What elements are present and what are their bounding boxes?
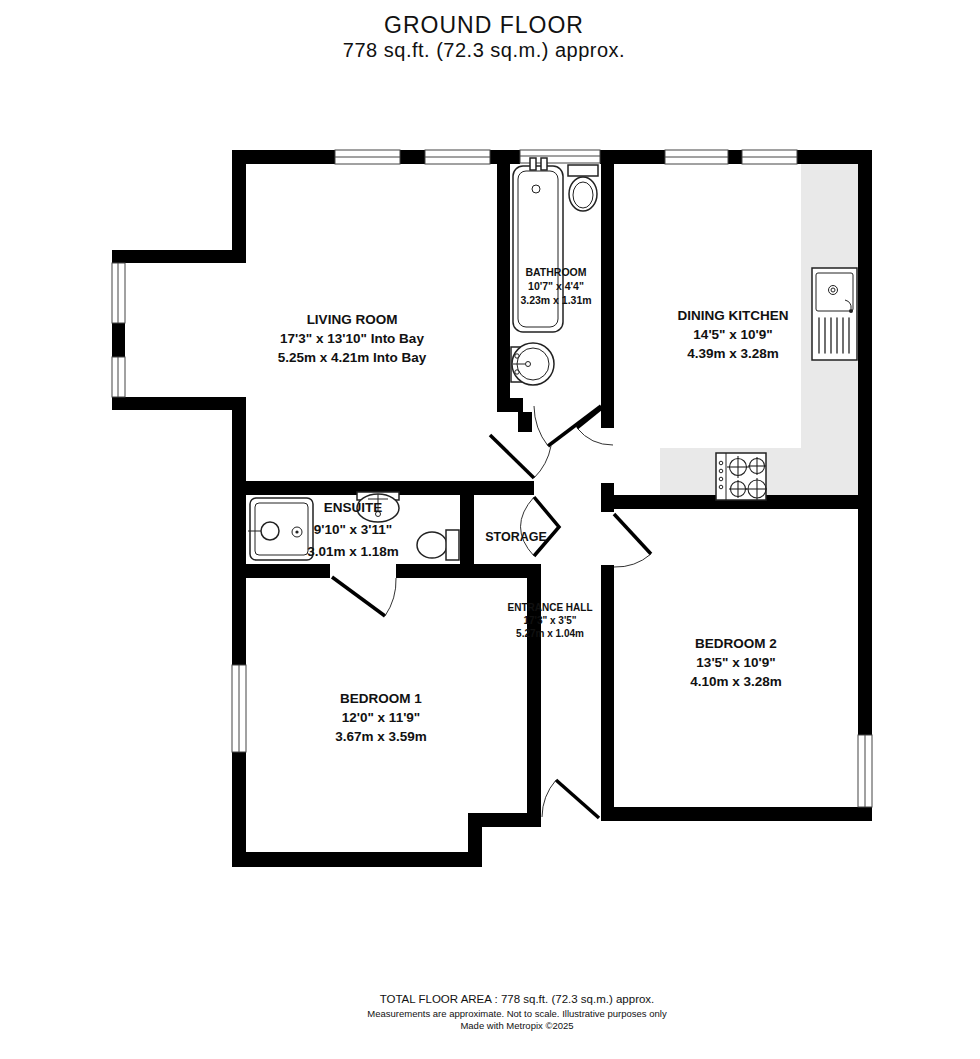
wall-segment: [601, 150, 614, 428]
room-name: BEDROOM 2: [695, 636, 777, 651]
wall-segment: [396, 564, 541, 578]
door-arc-bathroom: [534, 406, 548, 446]
wall-segment: [232, 150, 335, 164]
room-name: ENTRANCE HALL: [508, 602, 593, 613]
door-arc-entrance: [542, 780, 556, 817]
label-living-room: LIVING ROOM 17'3" x 13'10" Into Bay 5.25…: [278, 312, 427, 365]
wall-segment: [232, 150, 246, 263]
label-entrance-hall: ENTRANCE HALL 17'3" x 3'5" 5.27m x 1.04m: [508, 602, 593, 639]
room-dims-metric: 5.25m x 4.21m Into Bay: [278, 350, 427, 365]
bath-icon: [513, 166, 563, 332]
walls: [112, 150, 872, 867]
wall-segment: [460, 495, 474, 564]
bay-wall-left: [112, 323, 125, 357]
wall-segment: [497, 398, 523, 412]
credit: Made with Metropix ©2025: [460, 1020, 573, 1031]
bath-tap-icon: [541, 158, 547, 170]
bay-wall-left: [112, 250, 125, 263]
label-dining-kitchen: DINING KITCHEN 14'5" x 10'9" 4.39m x 3.2…: [678, 308, 789, 361]
sink-tap-base: [849, 309, 853, 313]
wall-segment: [232, 752, 246, 867]
room-name: ENSUITE: [324, 500, 383, 515]
wall-segment: [232, 397, 246, 665]
wall-segment: [728, 150, 742, 164]
wall-segment: [601, 565, 614, 821]
room-name: BEDROOM 1: [340, 691, 422, 706]
shower-head-icon: [261, 522, 279, 540]
shower-icon: [250, 498, 313, 560]
room-dims-imperial: 13'5" x 10'9": [696, 655, 775, 670]
room-dims-imperial: 12'0" x 11'9": [342, 710, 421, 725]
hob-icon: [716, 453, 766, 500]
ensuite-toilet-icon: [417, 532, 447, 558]
wall-segment: [400, 150, 425, 164]
room-name: LIVING ROOM: [307, 312, 398, 327]
title: GROUND FLOOR 778 sq.ft. (72.3 sq.m.) app…: [343, 12, 625, 61]
door-leaf-entrance: [556, 780, 599, 818]
door-arc-kitchen: [577, 428, 613, 445]
door-leaf-bathroom: [548, 406, 601, 446]
room-name: BATHROOM: [525, 266, 586, 278]
room-name: DINING KITCHEN: [678, 308, 789, 323]
toilet-cistern-icon: [568, 165, 598, 176]
label-bedroom-1: BEDROOM 1 12'0" x 11'9" 3.67m x 3.59m: [335, 691, 427, 744]
ensuite-toilet-cistern: [446, 530, 459, 560]
room-dims-imperial: 10'7" x 4'4": [528, 280, 584, 292]
label-bathroom: BATHROOM 10'7" x 4'4" 3.23m x 1.31m: [520, 266, 591, 306]
bath-tap-icon: [530, 158, 536, 170]
door-leaf-bedroom1: [332, 577, 385, 616]
room-name: STORAGE: [485, 530, 547, 544]
total-floor-area: TOTAL FLOOR AREA : 778 sq.ft. (72.3 sq.m…: [380, 993, 655, 1005]
door-bifold-storage: [534, 497, 559, 556]
room-dims-metric: 5.27m x 1.04m: [516, 628, 584, 639]
floorplan-svg: GROUND FLOOR 778 sq.ft. (72.3 sq.m.) app…: [0, 0, 980, 1059]
wall-segment: [858, 150, 872, 735]
floorplan-page: GROUND FLOOR 778 sq.ft. (72.3 sq.m.) app…: [0, 0, 980, 1059]
footer: TOTAL FLOOR AREA : 778 sq.ft. (72.3 sq.m…: [367, 993, 667, 1031]
door-arc-bedroom2: [614, 554, 651, 567]
room-dims-imperial: 17'3" x 13'10" Into Bay: [280, 331, 424, 346]
bay-wall-top: [112, 250, 246, 263]
door-leaf-living-room: [490, 435, 534, 478]
bay-wall-left: [112, 397, 125, 410]
door-leaf-bedroom2: [614, 514, 651, 554]
room-dims-imperial: 17'3" x 3'5": [523, 615, 576, 626]
wall-segment: [497, 150, 510, 412]
page-subtitle: 778 sq.ft. (72.3 sq.m.) approx.: [343, 39, 625, 61]
label-bedroom-2: BEDROOM 2 13'5" x 10'9" 4.10m x 3.28m: [690, 636, 782, 689]
room-dims-imperial: 9'10" x 3'11": [314, 522, 393, 537]
shower-control-dot: [295, 530, 298, 533]
bay-wall-bottom: [112, 397, 246, 410]
door-arc-bedroom1: [385, 578, 396, 616]
label-storage: STORAGE: [485, 530, 547, 544]
room-dims-metric: 3.67m x 3.59m: [335, 729, 427, 744]
page-title: GROUND FLOOR: [384, 12, 584, 38]
wall-segment: [518, 412, 532, 432]
room-dims-metric: 3.23m x 1.31m: [520, 294, 591, 306]
disclaimer: Measurements are approximate. Not to sca…: [367, 1008, 667, 1019]
wall-segment: [232, 852, 482, 867]
door-arc-storage: [521, 497, 535, 556]
room-dims-metric: 4.10m x 3.28m: [690, 674, 782, 689]
room-dims-metric: 4.39m x 3.28m: [687, 346, 779, 361]
door-arc-living-room: [534, 446, 551, 478]
room-dims-metric: 3.01m x 1.18m: [307, 544, 399, 559]
room-dims-imperial: 14'5" x 10'9": [693, 327, 772, 342]
wall-segment: [232, 564, 330, 578]
wall-segment: [601, 807, 872, 821]
